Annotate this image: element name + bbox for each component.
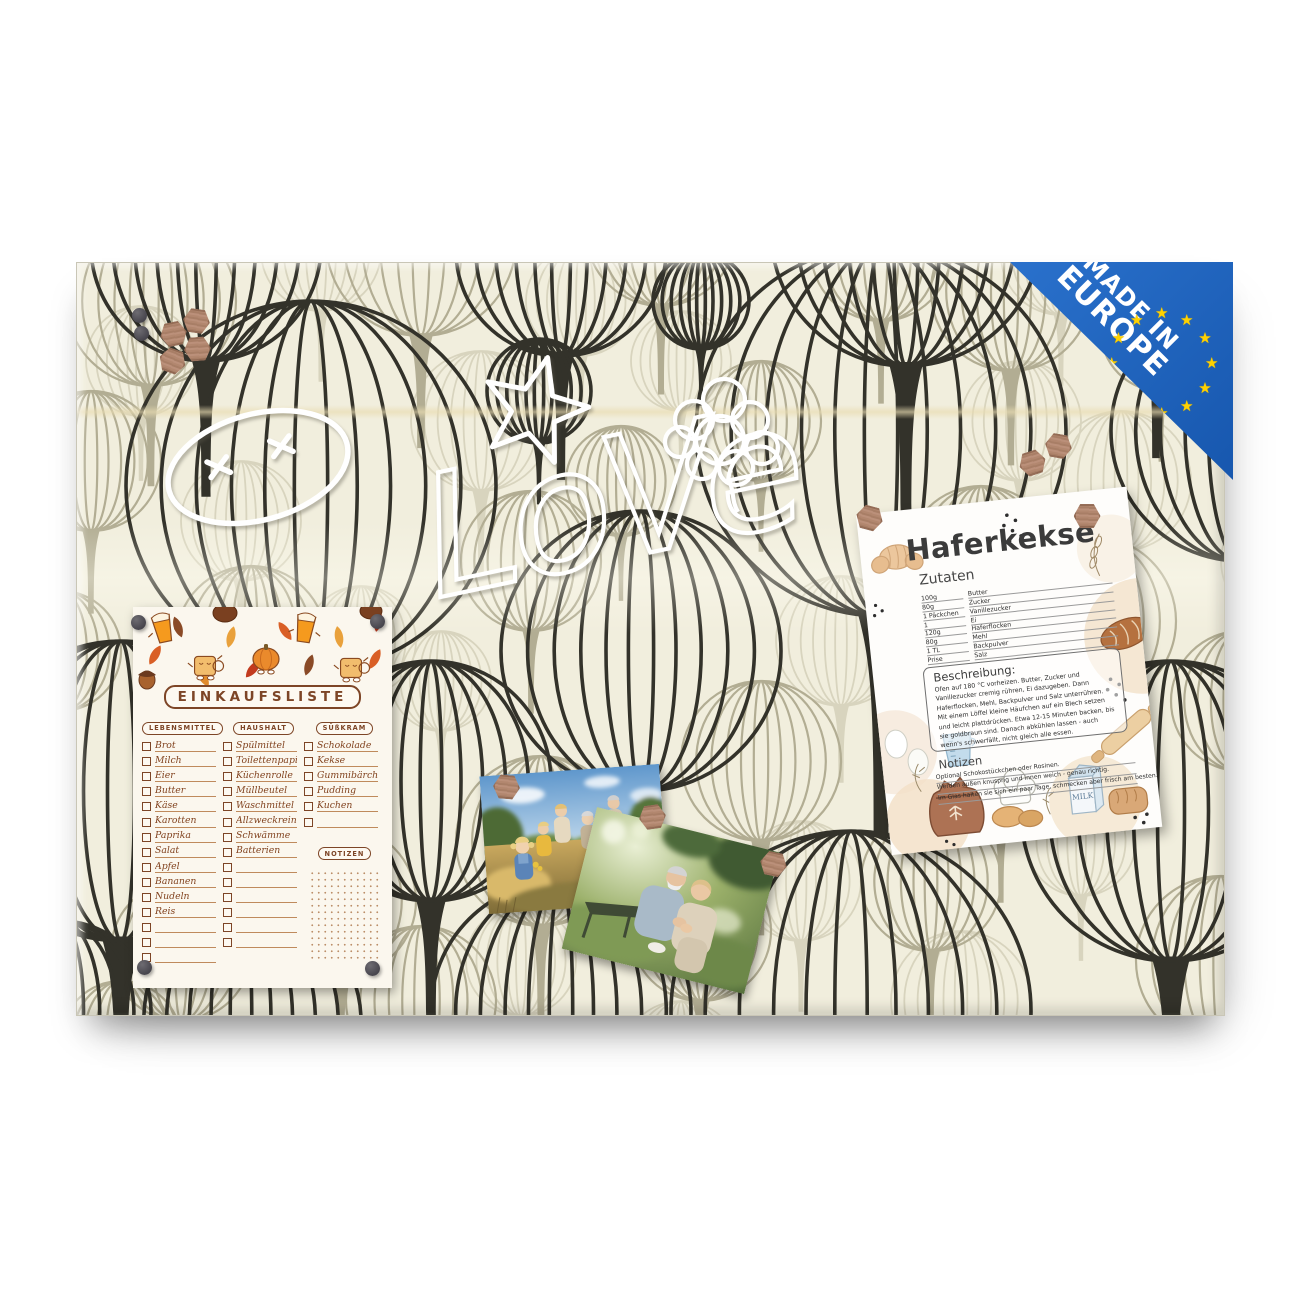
shopping-item-row[interactable]: Kuchen (304, 797, 385, 812)
checkbox[interactable] (142, 938, 151, 947)
shopping-item-row[interactable]: Paprika (142, 828, 223, 843)
shopping-item-label: Salat (155, 846, 216, 857)
checkbox[interactable] (223, 878, 232, 887)
shopping-item-row[interactable] (142, 948, 223, 963)
eu-star-icon: ★ (1130, 313, 1143, 328)
checkbox[interactable] (304, 787, 313, 796)
shopping-item-row[interactable]: Toilettenpapier (223, 752, 304, 767)
shopping-column-header: LEBENSMITTEL (142, 722, 223, 735)
checkbox[interactable] (142, 848, 151, 857)
shopping-item-row[interactable]: Allzweckreiniger (223, 812, 304, 827)
shopping-item-row[interactable]: Schwämme (223, 828, 304, 843)
shopping-item-row[interactable] (223, 858, 304, 873)
bread-loaf-illustration (1108, 786, 1148, 815)
autumn-banner-illustration (133, 607, 392, 690)
shopping-list-columns: LEBENSMITTELBrotMilchEierButterKäseKarot… (142, 715, 386, 963)
checkbox[interactable] (142, 772, 151, 781)
notes-header-pill: NOTIZEN (318, 847, 372, 860)
checkbox[interactable] (223, 938, 232, 947)
wire-smiley-decor[interactable] (155, 392, 360, 542)
shopping-column: SÜßKRAMSchokoladeKekseGummibärchenPuddin… (304, 715, 385, 963)
shopping-item-row[interactable]: Milch (142, 752, 223, 767)
shopping-column-header: HAUSHALT (233, 722, 294, 735)
shopping-item-row[interactable] (142, 933, 223, 948)
shopping-item-label (317, 816, 378, 827)
checkbox[interactable] (223, 923, 232, 932)
shopping-item-row[interactable]: Küchenrolle (223, 767, 304, 782)
shopping-column: LEBENSMITTELBrotMilchEierButterKäseKarot… (142, 715, 223, 963)
shopping-item-label: Reis (155, 907, 216, 918)
eu-star-icon: ★ (1155, 306, 1168, 321)
shopping-item-label (236, 937, 297, 948)
shopping-list-title-pill: EINKAUFSLISTE (133, 685, 392, 709)
checkbox[interactable] (304, 818, 313, 827)
wire-love-decor[interactable]: LoVe (404, 366, 817, 637)
shopping-item-row[interactable]: Salat (142, 843, 223, 858)
shopping-item-row[interactable]: Reis (142, 903, 223, 918)
eu-star-icon: ★ (1198, 381, 1211, 396)
recipe-card[interactable]: MILK Haferkekse Zutaten 100gButter80gZuc… (856, 487, 1162, 856)
round-magnet[interactable] (137, 960, 152, 975)
checkbox[interactable] (142, 742, 151, 751)
shopping-item-label: Toilettenpapier (236, 756, 297, 767)
shopping-item-row[interactable]: Nudeln (142, 888, 223, 903)
checkbox[interactable] (223, 908, 232, 917)
checkbox[interactable] (223, 757, 232, 766)
shopping-item-row[interactable]: Pudding (304, 782, 385, 797)
checkbox[interactable] (142, 878, 151, 887)
shopping-item-row[interactable]: Spülmittel (223, 737, 304, 752)
shopping-item-label: Kekse (317, 756, 378, 767)
shopping-item-label: Paprika (155, 831, 216, 842)
shopping-item-row[interactable]: Brot (142, 737, 223, 752)
eu-star-icon: ★ (1180, 399, 1193, 414)
shopping-item-label: Küchenrolle (236, 771, 297, 782)
shopping-item-label: Bananen (155, 877, 216, 888)
shopping-item-label: Milch (155, 756, 216, 767)
shopping-item-label: Batterien (236, 846, 297, 857)
shopping-list-title: EINKAUFSLISTE (164, 685, 362, 709)
checkbox[interactable] (142, 818, 151, 827)
checkbox[interactable] (223, 848, 232, 857)
shopping-item-label (155, 937, 216, 948)
checkbox[interactable] (304, 802, 313, 811)
checkbox[interactable] (223, 787, 232, 796)
checkbox[interactable] (142, 833, 151, 842)
checkbox[interactable] (142, 802, 151, 811)
shopping-item-row[interactable]: Müllbeutel (223, 782, 304, 797)
shopping-item-label (236, 862, 297, 873)
shopping-item-label: Spülmittel (236, 741, 297, 752)
checkbox[interactable] (223, 772, 232, 781)
eu-star-icon: ★ (1180, 313, 1193, 328)
shopping-item-row[interactable]: Schokolade (304, 737, 385, 752)
round-magnet[interactable] (134, 326, 149, 341)
wire-love-word: LoVe (404, 366, 817, 637)
shopping-item-row[interactable]: Käse (142, 797, 223, 812)
eu-star-icon: ★ (1198, 331, 1211, 346)
checkbox[interactable] (304, 757, 313, 766)
round-magnet[interactable] (131, 615, 146, 630)
shopping-item-row[interactable]: Eier (142, 767, 223, 782)
checkbox[interactable] (304, 772, 313, 781)
checkbox[interactable] (223, 818, 232, 827)
shopping-item-row[interactable]: Batterien (223, 843, 304, 858)
shopping-item-row[interactable]: Äpfel (142, 858, 223, 873)
shopping-item-row[interactable] (304, 812, 385, 827)
checkbox[interactable] (223, 742, 232, 751)
shopping-item-row[interactable] (223, 903, 304, 918)
checkbox[interactable] (223, 833, 232, 842)
shopping-item-row[interactable]: Bananen (142, 873, 223, 888)
shopping-item-label: Allzweckreiniger (236, 816, 297, 827)
product-photo-stage: LoVe (0, 0, 1300, 1300)
shopping-item-row[interactable]: Karotten (142, 812, 223, 827)
shopping-column-header: SÜßKRAM (316, 722, 374, 735)
shopping-item-label: Butter (155, 786, 216, 797)
shopping-item-label (236, 922, 297, 933)
notes-dot-grid[interactable] (309, 870, 381, 963)
checkbox[interactable] (142, 908, 151, 917)
shopping-list-note[interactable]: EINKAUFSLISTE LEBENSMITTELBrotMilchEierB… (133, 607, 392, 988)
shopping-item-row[interactable] (223, 873, 304, 888)
shopping-item-label: Karotten (155, 816, 216, 827)
shopping-item-label: Müllbeutel (236, 786, 297, 797)
shopping-item-label: Nudeln (155, 892, 216, 903)
shopping-item-label: Kuchen (317, 801, 378, 812)
shopping-item-label: Käse (155, 801, 216, 812)
shopping-item-label (236, 907, 297, 918)
checkbox[interactable] (304, 742, 313, 751)
shopping-item-label: Waschmittel (236, 801, 297, 812)
shopping-column: HAUSHALTSpülmittelToilettenpapierKüchenr… (223, 715, 304, 963)
round-magnet[interactable] (370, 614, 385, 629)
shopping-item-label: Brot (155, 741, 216, 752)
round-magnet[interactable] (132, 308, 147, 323)
shopping-item-label (236, 892, 297, 903)
shopping-item-label (155, 922, 216, 933)
checkbox[interactable] (223, 802, 232, 811)
shopping-item-label: Schokolade (317, 741, 378, 752)
eu-star-icon: ★ (1112, 331, 1125, 346)
eu-star-icon: ★ (1205, 356, 1218, 371)
checkbox[interactable] (142, 757, 151, 766)
checkbox[interactable] (142, 863, 151, 872)
shopping-item-label: Gummibärchen (317, 771, 378, 782)
shopping-item-label (155, 952, 216, 963)
shopping-item-label: Eier (155, 771, 216, 782)
checkbox[interactable] (223, 893, 232, 902)
shopping-item-row[interactable]: Butter (142, 782, 223, 797)
shopping-item-row[interactable] (223, 918, 304, 933)
checkbox[interactable] (142, 787, 151, 796)
shopping-item-row[interactable] (142, 918, 223, 933)
shopping-item-row[interactable]: Gummibärchen (304, 767, 385, 782)
shopping-item-row[interactable]: Waschmittel (223, 797, 304, 812)
checkbox[interactable] (142, 923, 151, 932)
shopping-item-label (236, 877, 297, 888)
shopping-item-row[interactable] (223, 933, 304, 948)
shopping-item-row[interactable]: Kekse (304, 752, 385, 767)
checkbox[interactable] (142, 893, 151, 902)
shopping-item-label: Äpfel (155, 862, 216, 873)
checkbox[interactable] (223, 863, 232, 872)
shopping-item-row[interactable] (223, 888, 304, 903)
shopping-item-label: Pudding (317, 786, 378, 797)
shopping-item-label: Schwämme (236, 831, 297, 842)
round-magnet[interactable] (365, 961, 380, 976)
